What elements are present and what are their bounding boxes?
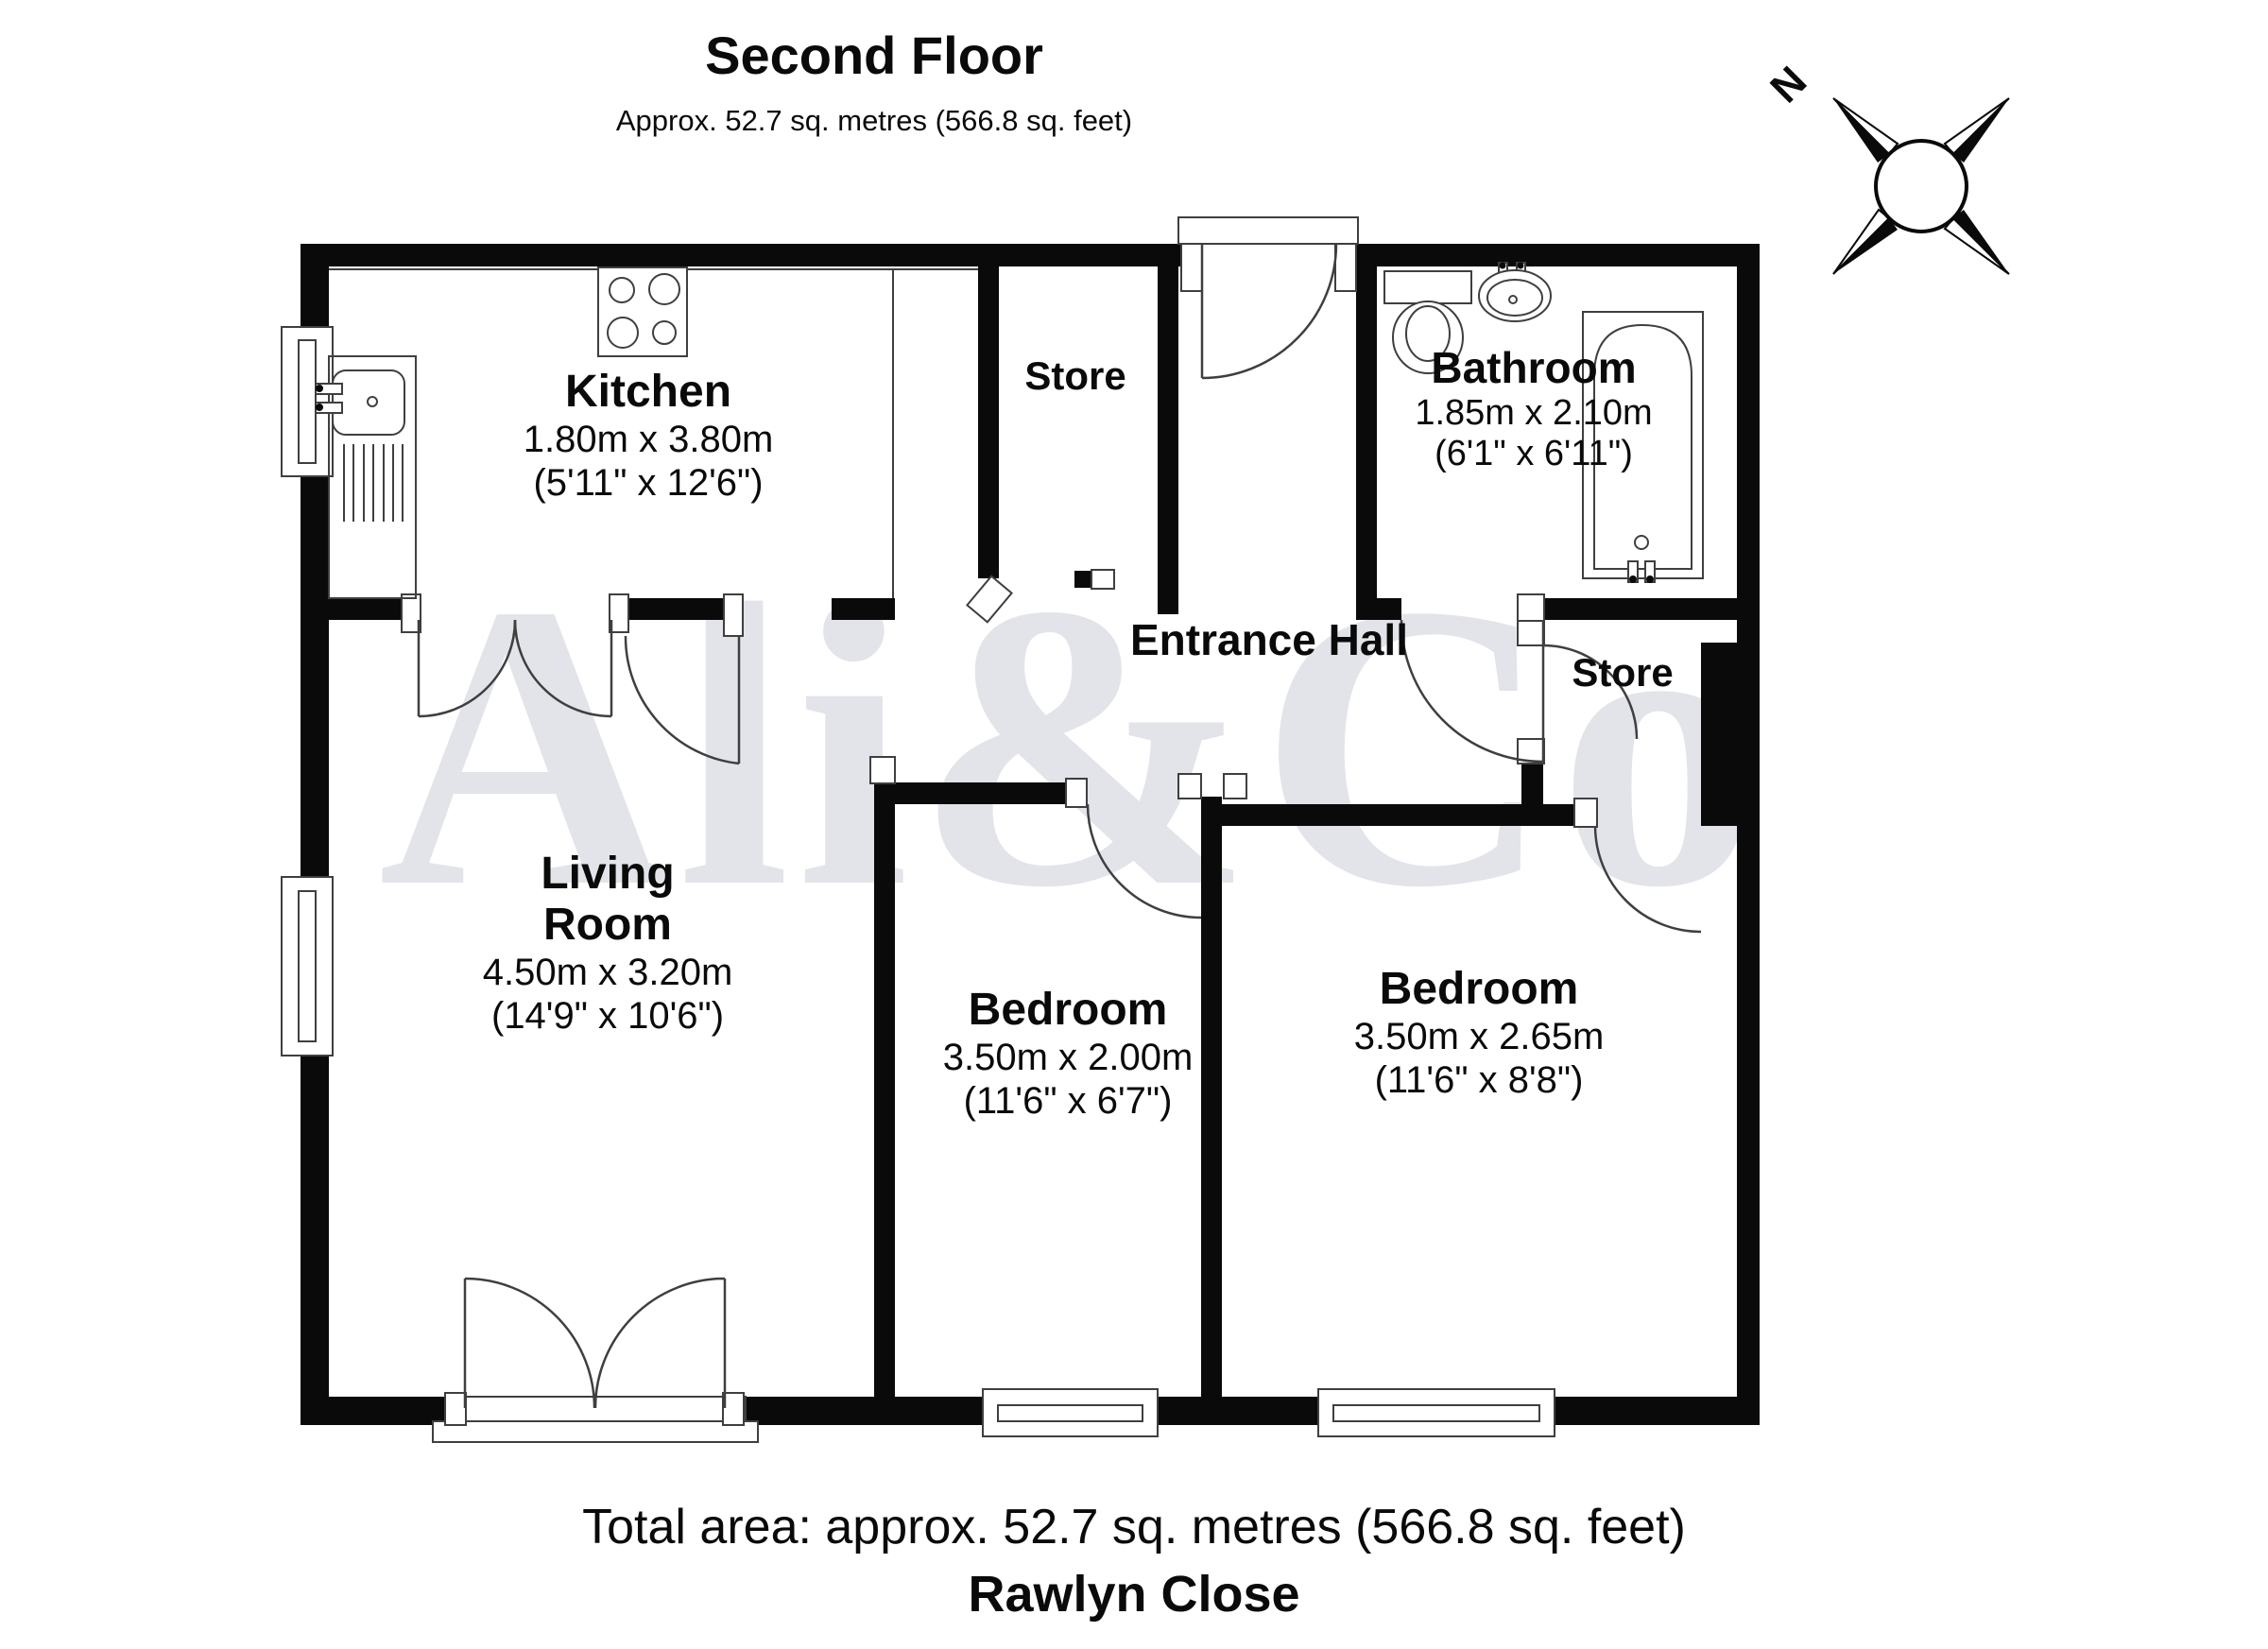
room-dim-metric: 1.80m x 3.80m bbox=[524, 418, 774, 461]
label-overlay: Second Floor Approx. 52.7 sq. metres (56… bbox=[0, 0, 2268, 1649]
room-label-store-top: Store bbox=[1024, 353, 1125, 399]
room-name: Store bbox=[1572, 650, 1673, 696]
room-label-living-room: Living Room 4.50m x 3.20m (14'9" x 10'6"… bbox=[483, 849, 733, 1038]
room-dim-imperial: (14'9" x 10'6") bbox=[483, 994, 733, 1038]
room-dim-imperial: (11'6" x 8'8") bbox=[1354, 1058, 1605, 1102]
room-dim-metric: 4.50m x 3.20m bbox=[483, 951, 733, 994]
room-name: Kitchen bbox=[524, 367, 774, 418]
room-name: Living Room bbox=[490, 849, 726, 951]
room-dim-imperial: (6'1" x 6'11") bbox=[1415, 434, 1652, 475]
room-name: Entrance Hall bbox=[1130, 616, 1408, 665]
room-label-bathroom: Bathroom 1.85m x 2.10m (6'1" x 6'11") bbox=[1415, 344, 1652, 475]
room-label-bedroom-left: Bedroom 3.50m x 2.00m (11'6" x 6'7") bbox=[943, 985, 1194, 1123]
page-title: Second Floor bbox=[705, 25, 1043, 86]
footer-address: Rawlyn Close bbox=[968, 1565, 1299, 1623]
room-dim-metric: 3.50m x 2.65m bbox=[1354, 1015, 1605, 1058]
room-label-bedroom-right: Bedroom 3.50m x 2.65m (11'6" x 8'8") bbox=[1354, 964, 1605, 1102]
page-subtitle: Approx. 52.7 sq. metres (566.8 sq. feet) bbox=[616, 104, 1132, 138]
room-dim-metric: 1.85m x 2.10m bbox=[1415, 393, 1652, 435]
room-label-kitchen: Kitchen 1.80m x 3.80m (5'11" x 12'6") bbox=[524, 367, 774, 505]
floor-title: Second Floor bbox=[705, 25, 1043, 86]
room-dim-imperial: (5'11" x 12'6") bbox=[524, 461, 774, 505]
room-name: Bedroom bbox=[1354, 964, 1605, 1015]
floor-area-subtitle: Approx. 52.7 sq. metres (566.8 sq. feet) bbox=[616, 104, 1132, 138]
total-area-text: Total area: approx. 52.7 sq. metres (566… bbox=[582, 1499, 1686, 1555]
room-name: Bathroom bbox=[1415, 344, 1652, 393]
room-label-entrance-hall: Entrance Hall bbox=[1130, 616, 1408, 665]
room-name: Store bbox=[1024, 353, 1125, 399]
footer-total-area: Total area: approx. 52.7 sq. metres (566… bbox=[582, 1499, 1686, 1555]
room-dim-metric: 3.50m x 2.00m bbox=[943, 1036, 1194, 1079]
address-text: Rawlyn Close bbox=[968, 1565, 1299, 1623]
room-dim-imperial: (11'6" x 6'7") bbox=[943, 1079, 1194, 1123]
room-label-store-right: Store bbox=[1572, 650, 1673, 696]
room-name: Bedroom bbox=[943, 985, 1194, 1036]
